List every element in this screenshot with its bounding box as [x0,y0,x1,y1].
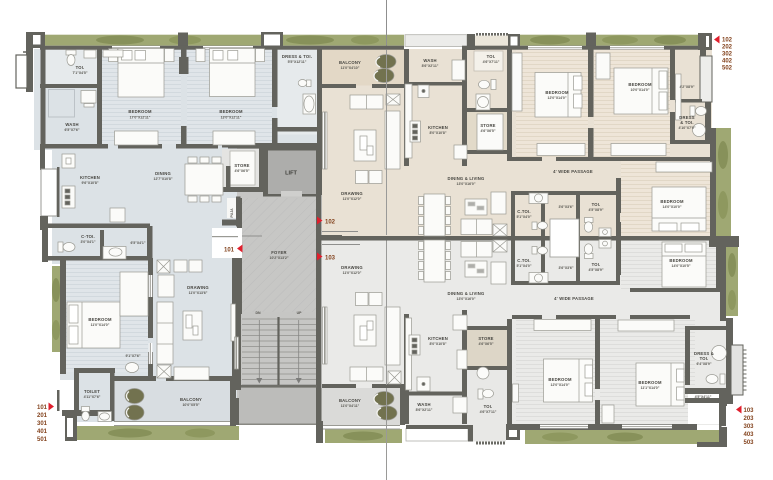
svg-text:11'0"X13'6": 11'0"X13'6" [189,291,208,295]
svg-text:BALCONY: BALCONY [339,60,361,65]
svg-text:11'0"X4'11": 11'0"X4'11" [341,404,360,408]
svg-text:8'0"X10'8": 8'0"X10'8" [429,131,446,135]
svg-text:UP: UP [297,311,303,315]
svg-text:BALCONY: BALCONY [180,397,202,402]
svg-text:5'1"X4'0": 5'1"X4'0" [516,215,531,219]
svg-text:6'5"X4'1": 6'5"X4'1" [130,241,145,245]
svg-text:403: 403 [744,432,755,438]
svg-text:102: 102 [722,38,733,44]
svg-text:13'0"X16'0": 13'0"X16'0" [457,297,476,301]
svg-text:C.TOI.: C.TOI. [517,258,530,263]
svg-text:202: 202 [722,45,733,51]
svg-text:DRESS & TOI.: DRESS & TOI. [282,54,312,59]
svg-text:DRAWING: DRAWING [341,191,363,196]
svg-text:4'6"X7'11": 4'6"X7'11" [480,410,497,414]
svg-text:102: 102 [325,220,336,226]
svg-text:C.TOI.: C.TOI. [517,209,530,214]
svg-text:BEDROOM: BEDROOM [628,82,652,87]
svg-text:8'0"X10'8": 8'0"X10'8" [429,342,446,346]
svg-text:14'0"X10'5": 14'0"X10'5" [672,264,691,268]
svg-text:BEDROOM: BEDROOM [545,90,569,95]
svg-text:5'1"X4'0": 5'1"X4'0" [516,264,531,268]
svg-text:10'0"X5'5": 10'0"X5'5" [182,403,199,407]
svg-text:DN: DN [255,311,261,315]
svg-text:BALCONY: BALCONY [339,398,361,403]
svg-text:TOI.: TOI. [484,404,493,409]
svg-text:TOI.: TOI. [76,65,85,70]
svg-text:DRAWING: DRAWING [187,285,209,290]
svg-text:101: 101 [224,248,235,254]
svg-text:WASH: WASH [65,122,78,127]
svg-text:DRAWING: DRAWING [341,265,363,270]
svg-text:9'6"X10'8": 9'6"X10'8" [81,181,98,185]
svg-text:6'4"X8'9": 6'4"X8'9" [696,362,711,366]
svg-text:DINING: DINING [155,171,171,176]
svg-text:4'5"X4'11": 4'5"X4'11" [695,395,712,399]
svg-text:12'0"X14'0": 12'0"X14'0" [548,96,567,100]
svg-text:3'6"X3'6": 3'6"X3'6" [558,266,573,270]
svg-text:LIFT: LIFT [285,171,297,177]
svg-text:C-TOI.: C-TOI. [81,234,95,239]
svg-text:DINING & LIVING: DINING & LIVING [448,291,485,296]
svg-text:BEDROOM: BEDROOM [638,380,662,385]
svg-text:KITCHEN: KITCHEN [428,336,448,341]
svg-text:BEDROOM: BEDROOM [219,109,243,114]
svg-text:13'0"X12'11": 13'0"X12'11" [221,116,242,120]
svg-text:10'0"X14'0": 10'0"X14'0" [631,88,650,92]
svg-text:TOI.: TOI. [700,356,709,361]
svg-text:101: 101 [37,405,48,411]
svg-text:TOI.: TOI. [592,262,601,267]
svg-text:203: 203 [744,416,755,422]
svg-text:BEDROOM: BEDROOM [548,377,572,382]
svg-text:11'0"X4'10": 11'0"X4'10" [341,66,360,70]
svg-text:TOI.: TOI. [592,202,601,207]
svg-text:301: 301 [37,421,48,427]
svg-text:4'6"X6'5": 4'6"X6'5" [480,129,495,133]
svg-text:BEDROOM: BEDROOM [669,258,693,263]
svg-text:4'6"X6'5": 4'6"X6'5" [478,342,493,346]
svg-text:8'6"X2'11": 8'6"X2'11" [416,408,433,412]
svg-text:10'2"X13'2": 10'2"X13'2" [270,256,289,260]
svg-text:STORE: STORE [234,163,249,168]
svg-text:4'6"X7'11": 4'6"X7'11" [483,60,500,64]
svg-text:201: 201 [37,413,48,419]
svg-text:3'0"X4'1": 3'0"X4'1" [80,240,95,244]
svg-text:3'6"X3'6": 3'6"X3'6" [558,205,573,209]
svg-text:5'5"X12'11": 5'5"X12'11" [288,60,307,64]
svg-text:WASH: WASH [423,58,436,63]
svg-text:BEDROOM: BEDROOM [660,199,684,204]
svg-text:17'0"X12'11": 17'0"X12'11" [130,116,151,120]
svg-text:103: 103 [744,408,755,414]
svg-text:4'11"X7'6": 4'11"X7'6" [84,395,101,399]
svg-text:KITCHEN: KITCHEN [428,125,448,130]
svg-text:4'10"X7'9": 4'10"X7'9" [678,126,695,130]
svg-text:& TOI.: & TOI. [680,120,693,125]
svg-text:11'0"X14'0": 11'0"X14'0" [91,323,110,327]
svg-text:BEDROOM: BEDROOM [128,109,152,114]
svg-text:502: 502 [722,66,733,72]
svg-text:14'0"X10'0": 14'0"X10'0" [663,205,682,209]
svg-text:4' WIDE PASSAGE: 4' WIDE PASSAGE [553,169,593,174]
svg-text:12'7"X10'8": 12'7"X10'8" [154,177,173,181]
svg-text:TOI.: TOI. [487,54,496,59]
svg-text:DINING & LIVING: DINING & LIVING [448,176,485,181]
svg-text:FOYER: FOYER [271,250,286,255]
svg-text:9'1"X7'6": 9'1"X7'6" [125,354,140,358]
svg-text:401: 401 [37,429,48,435]
svg-text:11'0"X12'0": 11'0"X12'0" [343,271,362,275]
svg-text:PUJA: PUJA [230,208,234,218]
svg-text:6'5"X7'6": 6'5"X7'6" [64,128,79,132]
svg-text:302: 302 [722,52,733,58]
svg-text:12'0"X14'0": 12'0"X14'0" [551,383,570,387]
svg-text:11'1"X14'0": 11'1"X14'0" [641,386,660,390]
svg-text:501: 501 [37,437,48,443]
svg-text:303: 303 [744,424,755,430]
svg-text:4'5"X8'9": 4'5"X8'9" [588,208,603,212]
svg-text:4'5"X8'9": 4'5"X8'9" [588,268,603,272]
svg-text:11'0"X12'0": 11'0"X12'0" [343,197,362,201]
svg-text:4' WIDE PASSAGE: 4' WIDE PASSAGE [554,296,594,301]
svg-text:8'6"X2'11": 8'6"X2'11" [422,64,439,68]
svg-text:WASH: WASH [417,402,430,407]
svg-text:4'6"X6'5": 4'6"X6'5" [234,169,249,173]
svg-text:STORE: STORE [478,336,493,341]
svg-text:4'2"X8'9": 4'2"X8'9" [679,85,694,89]
svg-text:BEDROOM: BEDROOM [88,317,112,322]
svg-text:7'1"X4'5": 7'1"X4'5" [72,71,87,75]
svg-text:103: 103 [325,256,336,262]
svg-text:KITCHEN: KITCHEN [80,175,100,180]
svg-text:13'0"X16'0": 13'0"X16'0" [457,182,476,186]
svg-text:STORE: STORE [480,123,495,128]
svg-text:402: 402 [722,59,733,65]
svg-text:TOILET: TOILET [84,389,100,394]
svg-text:503: 503 [744,440,755,446]
